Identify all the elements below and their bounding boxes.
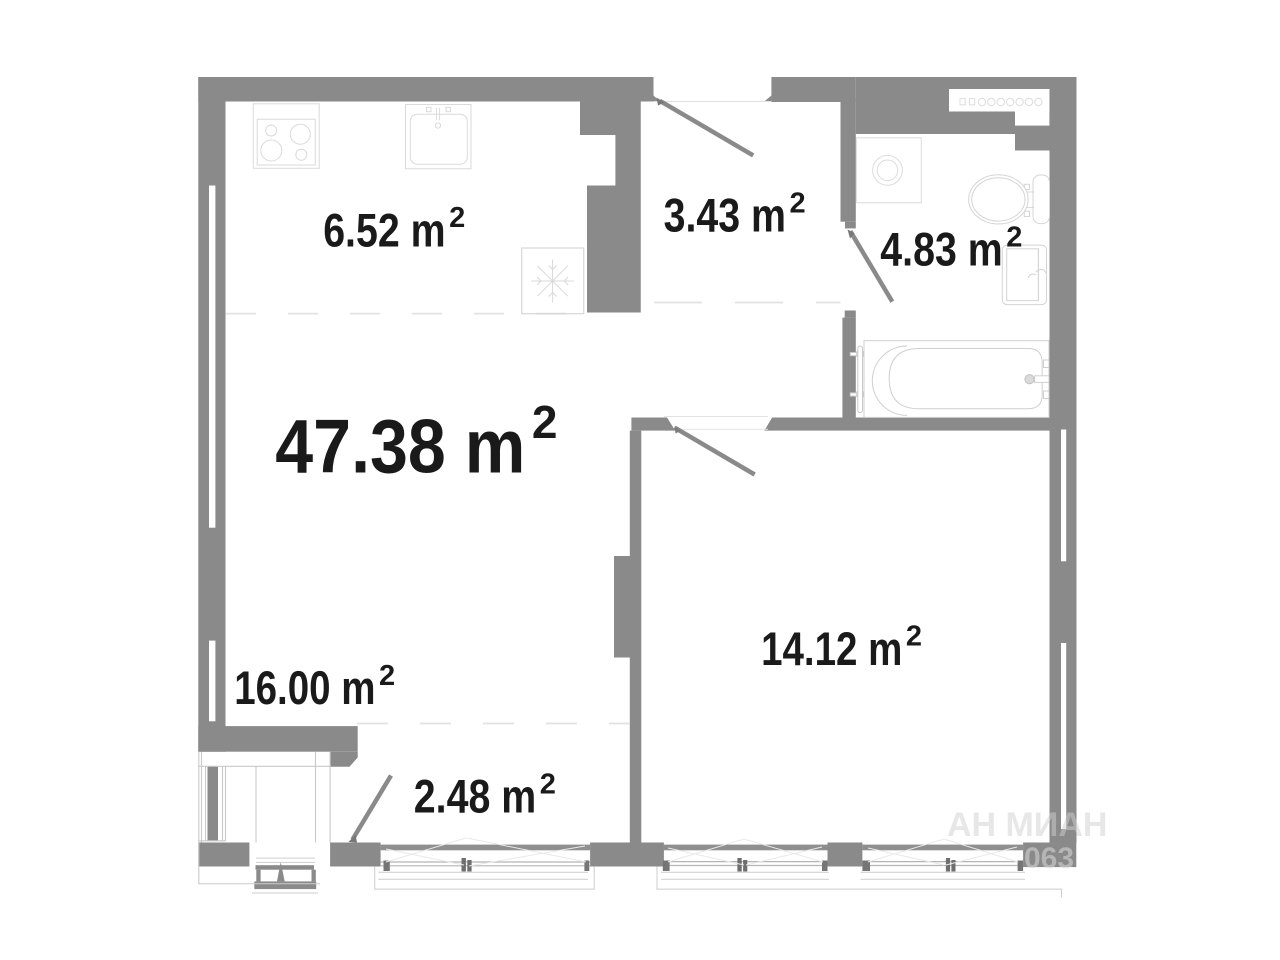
svg-text:АН МИАН: АН МИАН [947, 806, 1107, 844]
svg-text:14.12 m: 14.12 m [761, 622, 902, 675]
svg-text:2: 2 [449, 202, 465, 234]
svg-text:2: 2 [906, 621, 922, 653]
svg-text:2: 2 [532, 396, 558, 448]
svg-text:2: 2 [540, 768, 556, 800]
svg-text:2: 2 [1006, 221, 1022, 253]
svg-text:6.52 m: 6.52 m [323, 203, 445, 256]
svg-text:3.43 m: 3.43 m [664, 189, 786, 242]
svg-text:47.38 m: 47.38 m [275, 404, 525, 489]
svg-text:2.48 m: 2.48 m [414, 770, 536, 823]
svg-text:2: 2 [379, 660, 395, 692]
svg-text:2: 2 [790, 187, 806, 219]
svg-text:4.83 m: 4.83 m [880, 223, 1002, 276]
svg-text:16.00 m: 16.00 m [234, 661, 375, 714]
svg-text:063: 063 [1024, 842, 1074, 875]
